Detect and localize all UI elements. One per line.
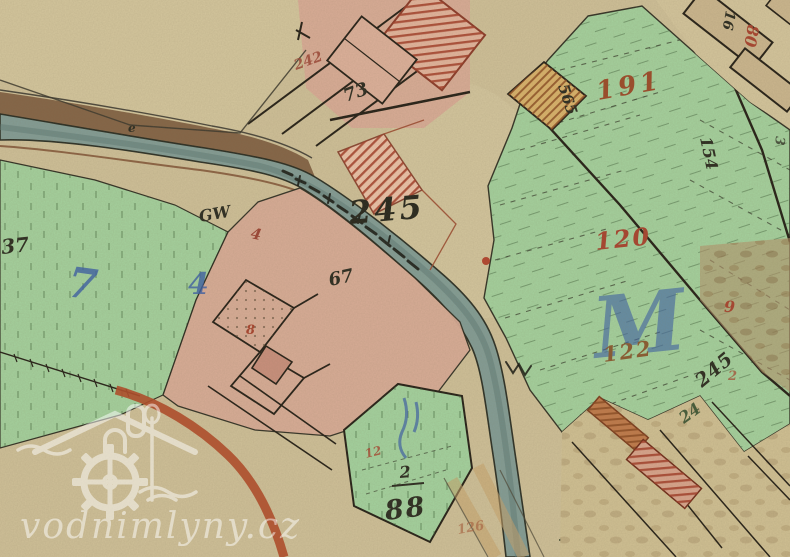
map-viewport[interactable]: 2457324256516801911543120M12292245243774… [0, 0, 790, 557]
watermark-text: vodnimlyny.cz [20, 506, 301, 547]
paper-grain [0, 0, 790, 557]
map-canvas: 2457324256516801911543120M12292245243774… [0, 0, 790, 557]
